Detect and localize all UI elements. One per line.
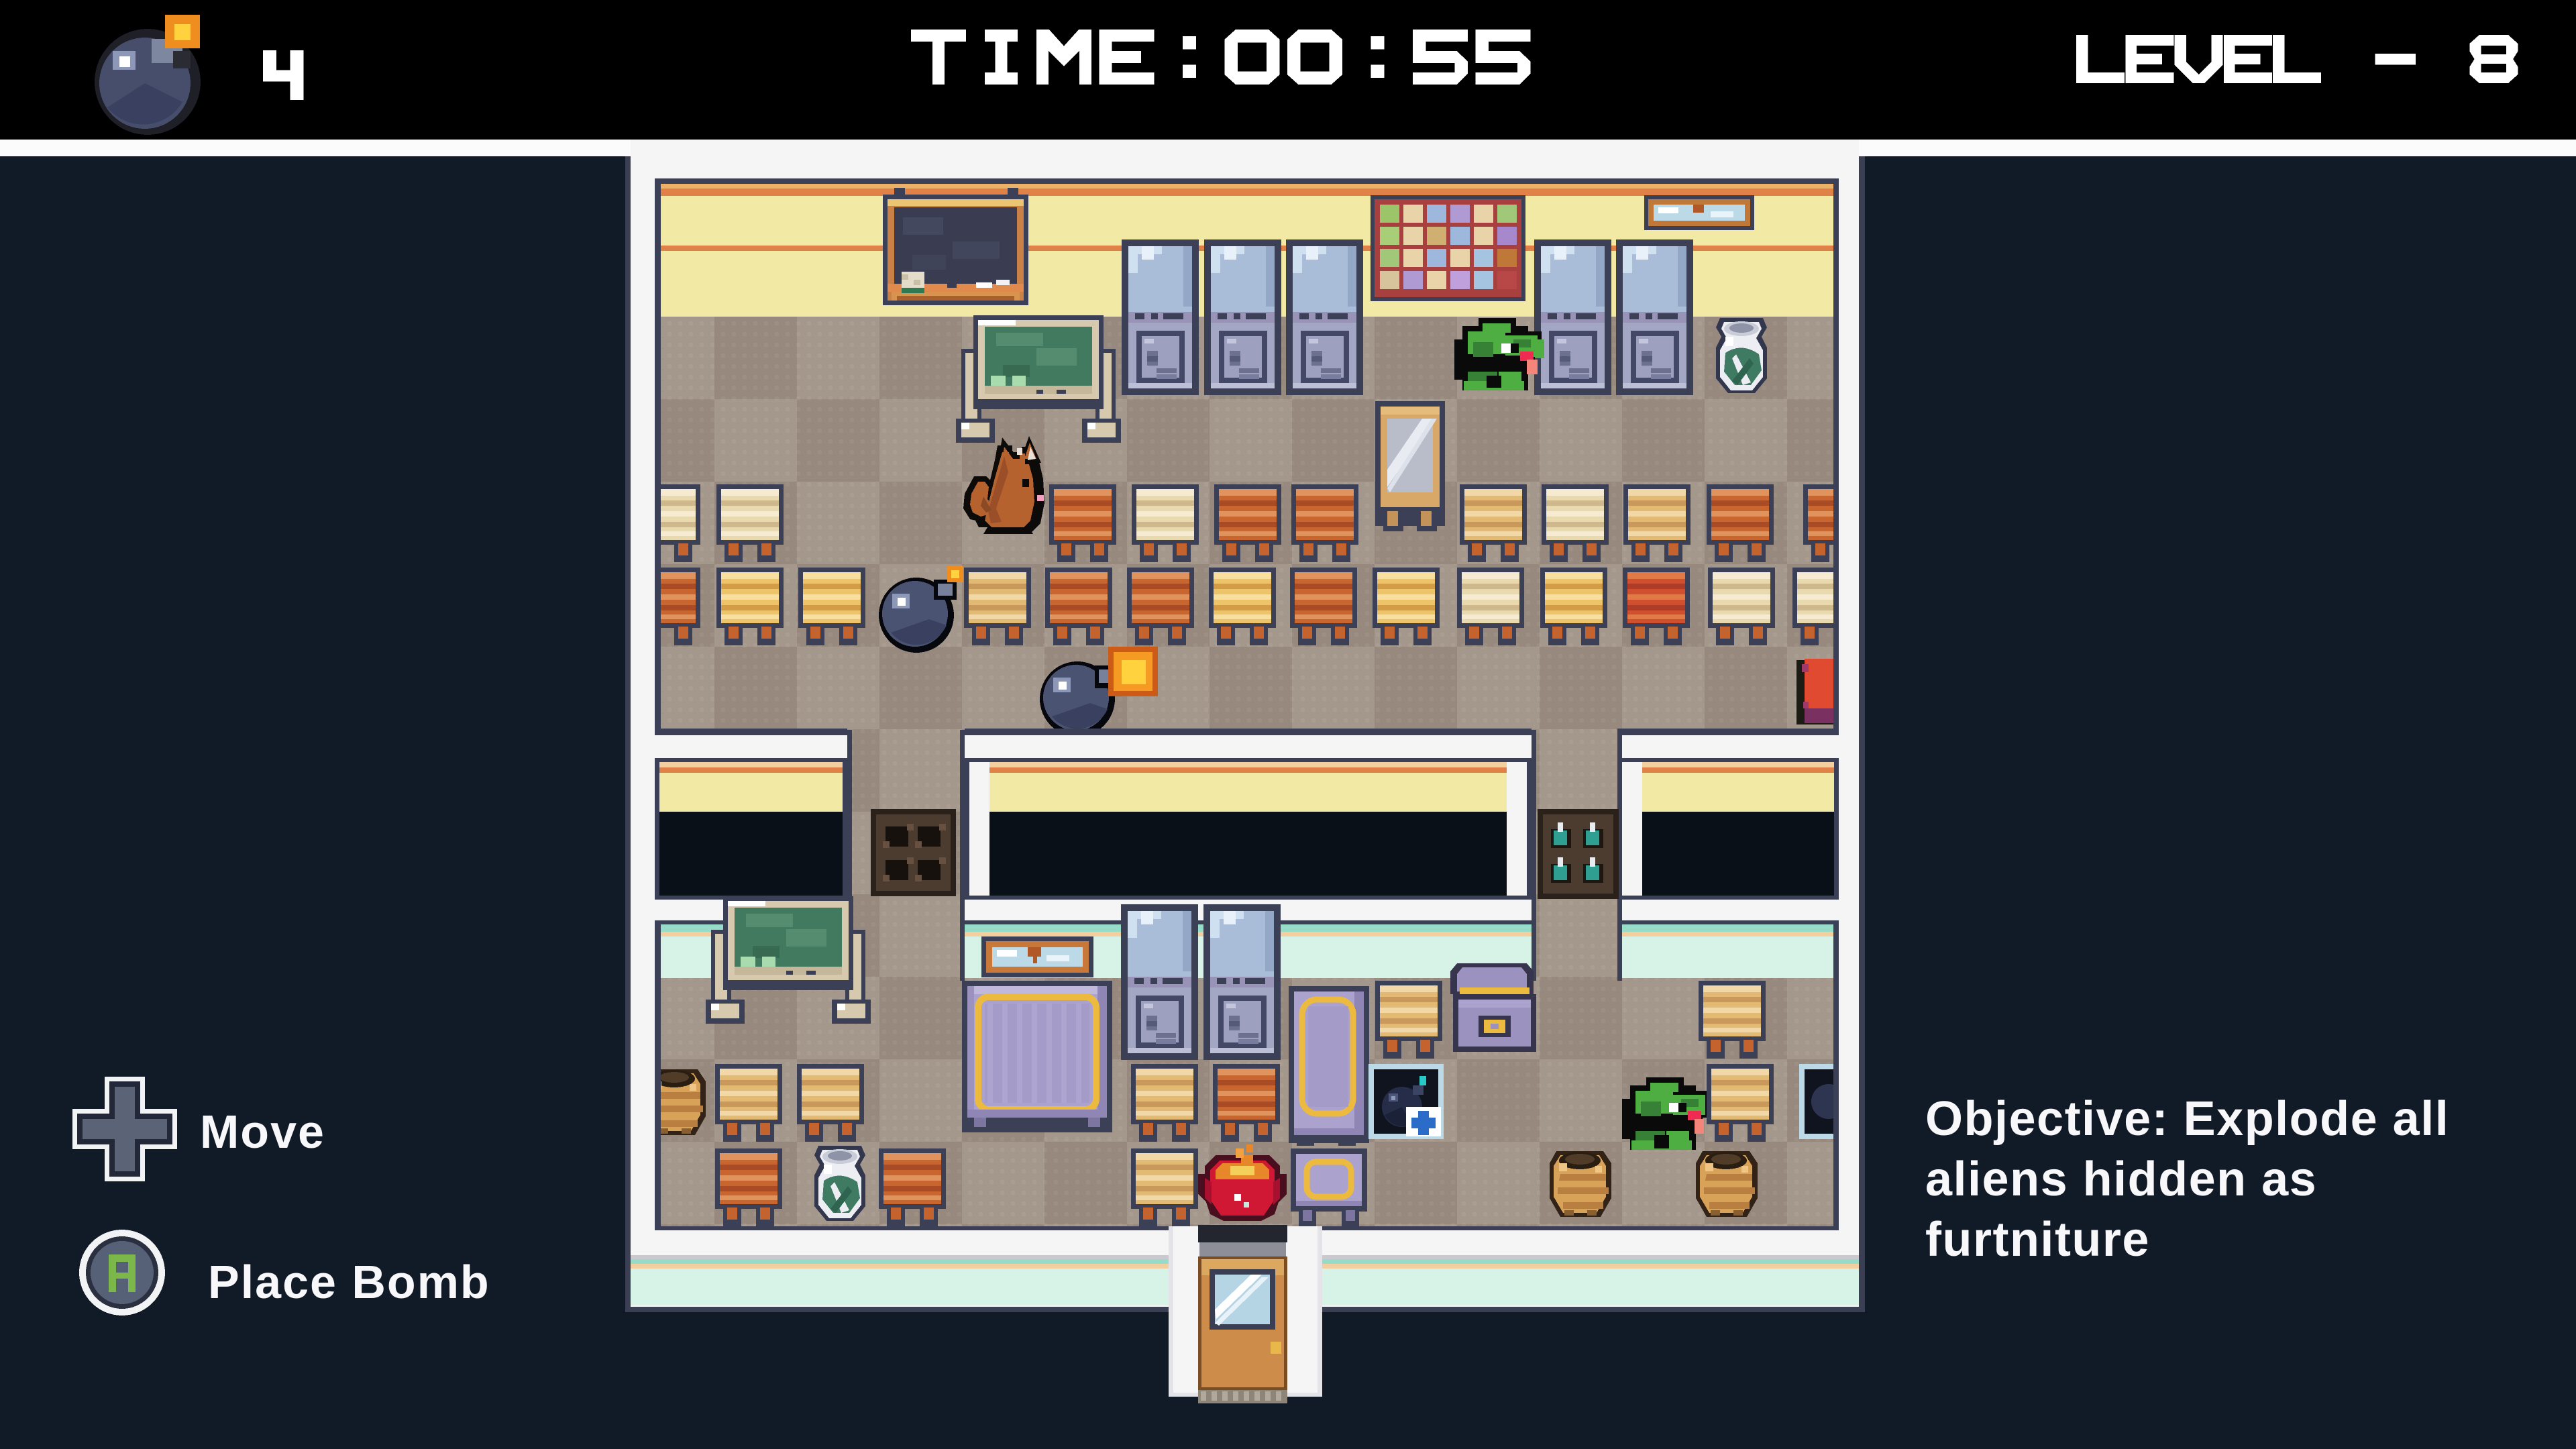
svg-text:Move: Move: [200, 1106, 325, 1158]
svg-text:aliens hidden as: aliens hidden as: [1925, 1152, 2317, 1206]
svg-text:furtniture: furtniture: [1925, 1213, 2150, 1267]
svg-text:Objective: Explode all: Objective: Explode all: [1925, 1092, 2449, 1146]
svg-text:Place Bomb: Place Bomb: [208, 1256, 490, 1308]
